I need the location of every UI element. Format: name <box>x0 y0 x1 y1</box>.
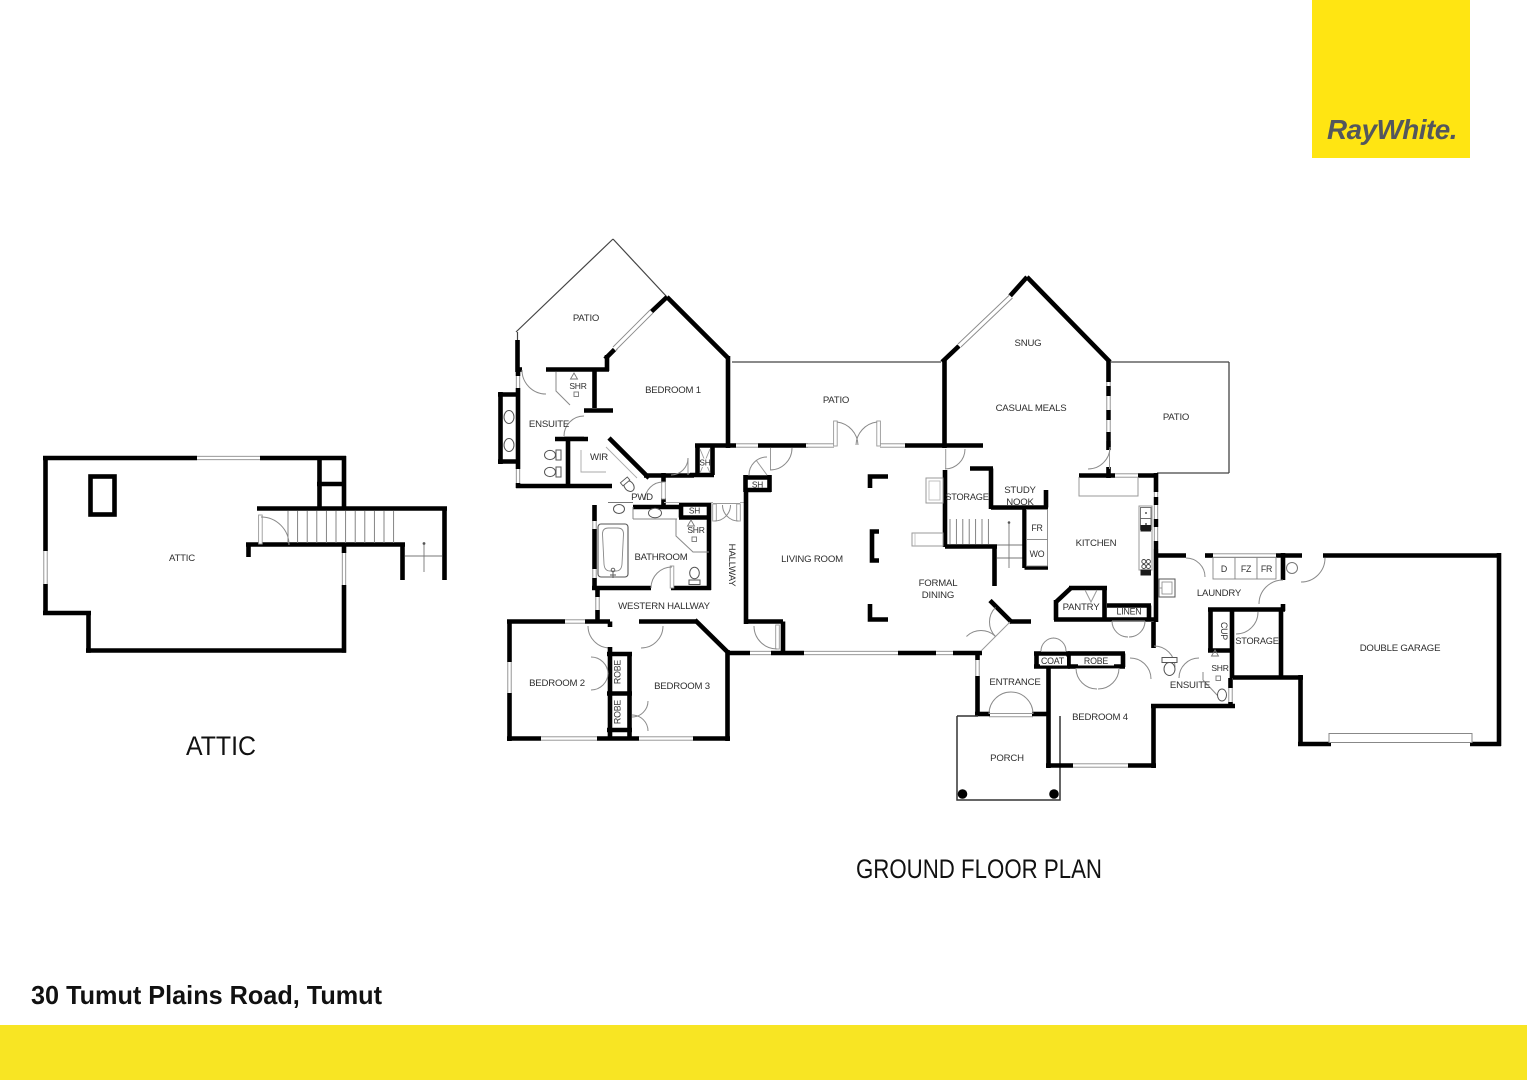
svg-text:FZ: FZ <box>1241 564 1252 574</box>
svg-text:COAT: COAT <box>1041 656 1065 666</box>
svg-text:SH: SH <box>752 480 763 490</box>
svg-text:BEDROOM 3: BEDROOM 3 <box>654 681 710 692</box>
svg-text:ROBE: ROBE <box>1084 656 1108 666</box>
svg-text:PATIO: PATIO <box>1163 412 1189 423</box>
svg-text:30 Tumut Plains Road, Tumut: 30 Tumut Plains Road, Tumut <box>31 980 382 1010</box>
svg-text:GROUND FLOOR PLAN: GROUND FLOOR PLAN <box>856 854 1102 884</box>
svg-text:DINING: DINING <box>922 590 954 601</box>
svg-text:PANTRY: PANTRY <box>1063 602 1101 613</box>
svg-text:WO: WO <box>1030 549 1045 559</box>
svg-text:FORMAL: FORMAL <box>919 578 959 589</box>
svg-text:STUDY: STUDY <box>1004 485 1036 496</box>
svg-text:LIVING ROOM: LIVING ROOM <box>781 554 843 565</box>
svg-text:HALLWAY: HALLWAY <box>726 544 737 587</box>
svg-text:BEDROOM 2: BEDROOM 2 <box>529 678 585 689</box>
svg-text:LAUNDRY: LAUNDRY <box>1197 588 1242 599</box>
svg-text:BEDROOM 4: BEDROOM 4 <box>1072 712 1129 723</box>
svg-text:CASUAL MEALS: CASUAL MEALS <box>996 403 1067 414</box>
svg-text:ENSUITE: ENSUITE <box>529 419 569 430</box>
svg-text:STORAGE: STORAGE <box>945 492 988 502</box>
svg-text:SH: SH <box>689 506 700 516</box>
svg-text:BEDROOM 1: BEDROOM 1 <box>645 385 701 396</box>
svg-text:FR: FR <box>1261 564 1272 574</box>
svg-text:D: D <box>1221 564 1227 574</box>
svg-text:NOOK: NOOK <box>1006 497 1034 508</box>
svg-text:SHR: SHR <box>687 525 704 535</box>
svg-text:STORAGE: STORAGE <box>1235 636 1278 646</box>
svg-text:ROBE: ROBE <box>613 700 623 724</box>
svg-text:PORCH: PORCH <box>990 753 1024 764</box>
svg-text:ENSUITE: ENSUITE <box>1170 680 1210 691</box>
svg-text:PATIO: PATIO <box>573 313 599 324</box>
svg-text:KITCHEN: KITCHEN <box>1076 538 1117 549</box>
svg-text:WIR: WIR <box>590 452 608 463</box>
svg-text:PATIO: PATIO <box>823 395 849 406</box>
svg-text:SHR: SHR <box>569 381 586 391</box>
svg-text:SH: SH <box>699 458 710 468</box>
svg-text:SHR: SHR <box>1211 663 1228 673</box>
svg-text:WESTERN HALLWAY: WESTERN HALLWAY <box>618 601 711 612</box>
svg-text:LINEN: LINEN <box>1117 607 1142 617</box>
svg-text:PWD: PWD <box>631 492 653 503</box>
svg-text:RayWhite.: RayWhite. <box>1327 114 1457 145</box>
svg-text:ATTIC: ATTIC <box>169 553 195 564</box>
svg-text:ATTIC: ATTIC <box>186 731 256 761</box>
svg-text:ENTRANCE: ENTRANCE <box>989 677 1040 688</box>
svg-text:BATHROOM: BATHROOM <box>634 552 687 563</box>
svg-text:ROBE: ROBE <box>613 660 623 684</box>
svg-text:CUP: CUP <box>1219 622 1229 640</box>
svg-text:DOUBLE GARAGE: DOUBLE GARAGE <box>1360 643 1441 654</box>
svg-text:FR: FR <box>1031 523 1042 533</box>
svg-text:SNUG: SNUG <box>1015 338 1042 349</box>
